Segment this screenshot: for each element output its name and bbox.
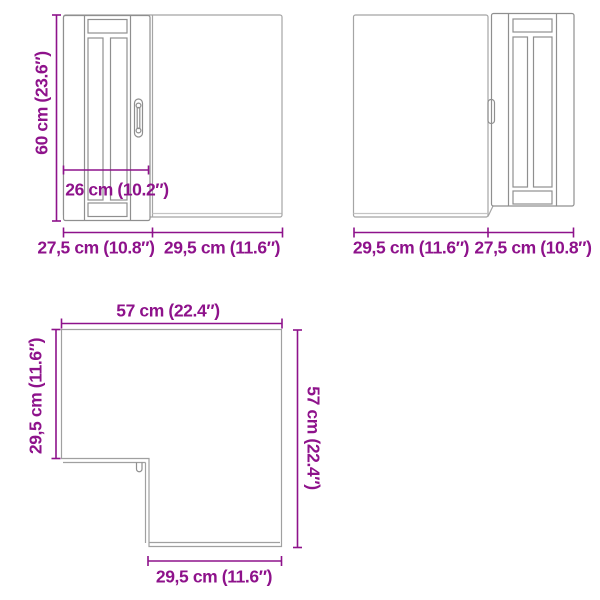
dimension-line-left-29cm <box>52 330 61 459</box>
carcass-right-view <box>354 15 494 217</box>
dimension-line-height-60cm <box>52 15 61 221</box>
top-view-right-depth-label: 57 cm (22.4″) <box>303 386 324 489</box>
front-right-door-width-label: 27,5 cm (10.8″) <box>474 238 591 259</box>
front-right-carcass-width-label: 29,5 cm (11.6″) <box>353 238 469 259</box>
front-left-inner-width-label: 26 cm (10.2″) <box>65 180 168 201</box>
top-view-bottom-width-label: 29,5 cm (11.6″) <box>156 567 272 588</box>
door-latch-icon <box>137 463 143 472</box>
dimensions-front-right <box>354 228 574 238</box>
dimension-line-bottom-right-fig2 <box>354 228 574 238</box>
dimension-diagram: 60 cm (23.6″) 26 cm (10.2″) 27,5 cm (10.… <box>0 0 600 600</box>
front-left-door-width-label: 27,5 cm (10.8″) <box>37 238 154 259</box>
front-left-carcass-width-label: 29,5 cm (11.6″) <box>164 238 280 259</box>
diagram-linework <box>0 0 600 600</box>
front-left-height-label: 60 cm (23.6″) <box>32 51 53 154</box>
dimension-line-right-57cm <box>293 330 302 548</box>
top-view-outline <box>62 330 282 547</box>
cabinet-front-right-view <box>354 14 575 218</box>
dimension-line-bottom-left-fig1 <box>64 228 283 238</box>
cabinet-top-view <box>62 330 282 547</box>
dimensions-top-view <box>52 319 303 567</box>
cabinet-door <box>492 14 575 207</box>
top-view-top-width-label: 57 cm (22.4″) <box>116 301 219 322</box>
dimension-line-bottom-29cm <box>148 556 282 566</box>
top-view-left-depth-label: 29,5 cm (11.6″) <box>26 338 47 454</box>
